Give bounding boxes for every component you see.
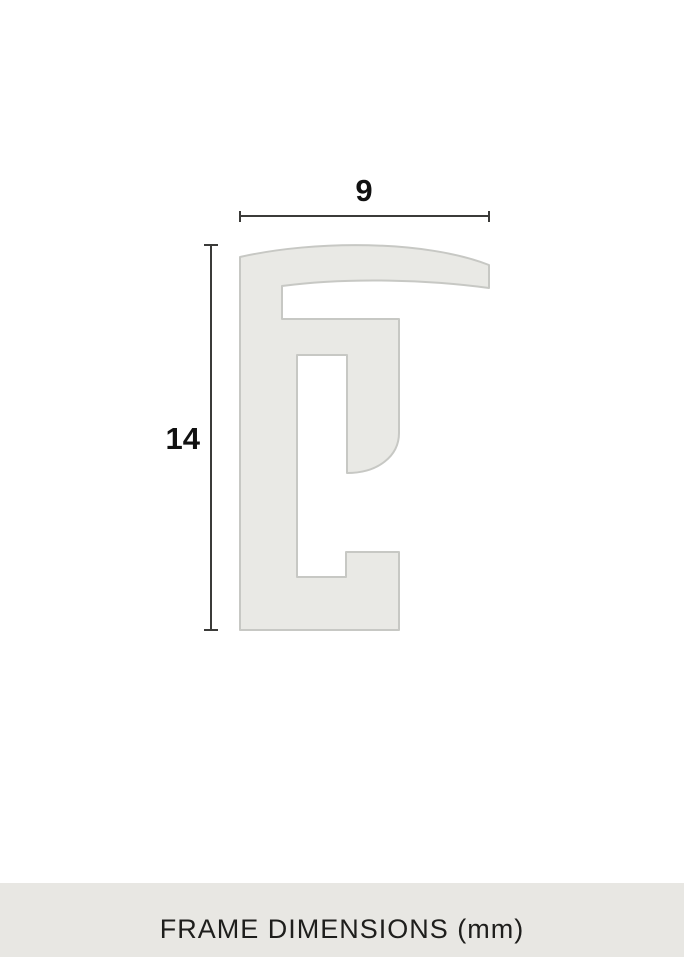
caption-bar: FRAME DIMENSIONS (mm) (0, 883, 684, 957)
caption-text: FRAME DIMENSIONS (mm) (160, 914, 525, 945)
frame-dimensions-diagram: 9 14 FRAME DIMENSIONS (mm) (0, 0, 684, 957)
frame-profile-diagram: 9 14 (0, 0, 684, 883)
height-dimension-line (204, 245, 218, 630)
frame-profile-shape (240, 245, 489, 630)
height-dimension-label: 14 (166, 421, 201, 456)
width-dimension-line (240, 211, 489, 222)
width-dimension-label: 9 (355, 173, 372, 208)
